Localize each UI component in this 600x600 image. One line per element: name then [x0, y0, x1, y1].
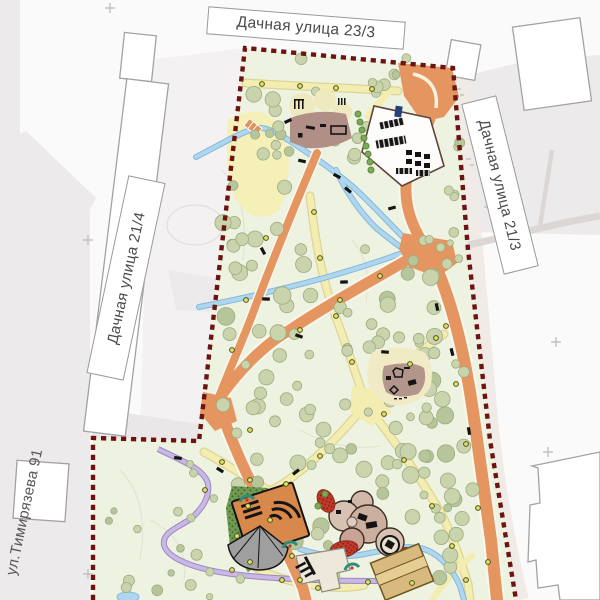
tree: [187, 514, 195, 522]
tree: [340, 399, 351, 410]
bush: [367, 159, 373, 165]
tree: [452, 360, 461, 369]
tree: [315, 438, 325, 448]
tree: [466, 483, 480, 497]
tree: [295, 244, 307, 256]
tree: [111, 508, 117, 514]
tree: [440, 473, 455, 488]
tree: [376, 475, 389, 488]
tree: [270, 222, 283, 235]
tree: [185, 580, 196, 591]
tree: [252, 324, 266, 338]
tree: [435, 391, 451, 407]
lamp-marker: [410, 581, 415, 586]
lamp-marker: [338, 298, 343, 303]
bush: [365, 151, 371, 157]
tree: [366, 319, 377, 330]
tree: [420, 491, 428, 499]
bush: [359, 127, 365, 133]
tree: [236, 233, 249, 246]
tree: [455, 511, 469, 525]
lamp-marker: [370, 87, 375, 92]
lamp-marker: [235, 534, 240, 539]
tree: [316, 422, 331, 437]
bench: [262, 297, 270, 300]
tree: [246, 86, 262, 102]
lamp-marker: [298, 84, 303, 89]
lamp-marker: [318, 256, 323, 261]
lamp-marker: [408, 362, 413, 367]
tree: [333, 448, 348, 463]
tree: [419, 450, 431, 462]
tree: [368, 78, 377, 87]
tree: [177, 544, 185, 552]
tree: [270, 416, 281, 427]
tree: [444, 504, 452, 512]
lamp-marker: [444, 324, 449, 329]
lamp-marker: [350, 360, 355, 365]
lamp-marker: [454, 382, 459, 387]
tree: [189, 469, 197, 477]
lamp-marker: [203, 488, 208, 493]
tree: [152, 585, 163, 596]
tree: [229, 262, 242, 275]
lamp-marker: [464, 578, 469, 583]
tree: [361, 245, 370, 254]
tree: [241, 360, 250, 369]
tree: [246, 260, 257, 271]
tree: [343, 308, 352, 317]
lamp-marker: [378, 274, 383, 279]
lamp-marker: [318, 454, 323, 459]
tree: [356, 461, 372, 477]
tree: [457, 439, 471, 453]
lamp-marker: [246, 504, 251, 509]
tree: [210, 495, 218, 503]
tree: [377, 488, 389, 500]
tree: [284, 147, 294, 157]
tree: [392, 71, 400, 79]
tree: [413, 333, 424, 344]
tree: [422, 403, 431, 412]
tree: [251, 476, 263, 488]
lamp-marker: [486, 560, 491, 565]
lamp-marker: [382, 412, 387, 417]
tree: [293, 381, 302, 390]
tree: [401, 267, 414, 280]
lamp-marker: [248, 560, 253, 565]
tree: [363, 341, 375, 353]
lamp-marker: [284, 482, 289, 487]
lamp-marker: [402, 458, 407, 463]
lamp-marker: [298, 328, 303, 333]
lamp-marker: [268, 518, 273, 523]
tree: [346, 444, 357, 455]
bush: [322, 491, 328, 497]
tree: [436, 243, 445, 252]
lamp-marker: [230, 568, 235, 573]
tree: [380, 297, 395, 312]
lamp-marker: [316, 586, 321, 591]
bush: [315, 503, 321, 509]
bush: [363, 143, 369, 149]
tree: [405, 509, 420, 524]
tree: [217, 308, 235, 326]
tree: [447, 240, 454, 247]
tree: [206, 568, 214, 576]
tree: [364, 408, 372, 416]
lamp-marker: [230, 348, 235, 353]
lamp-marker: [476, 506, 481, 511]
tree: [296, 257, 312, 273]
tree: [389, 421, 402, 434]
tree: [307, 460, 316, 469]
tree: [305, 350, 314, 359]
tree: [442, 259, 452, 269]
tree: [434, 530, 449, 545]
lamp-marker: [260, 82, 265, 87]
lamp-marker: [430, 504, 435, 509]
tree: [232, 428, 242, 438]
tree: [254, 387, 266, 399]
tree: [216, 398, 230, 412]
bush: [368, 167, 374, 173]
lamp-marker: [434, 336, 439, 341]
tree: [191, 549, 202, 560]
tree: [423, 269, 439, 285]
tree: [437, 407, 454, 424]
tree: [105, 517, 112, 524]
tree: [342, 345, 353, 356]
tree: [280, 393, 293, 406]
tree: [265, 92, 280, 107]
lamp-marker: [464, 442, 469, 447]
lamp-marker: [334, 314, 339, 319]
tree: [134, 525, 142, 533]
bench: [381, 350, 389, 354]
map-canvas[interactable]: Дачная улица 23/3 Дачная улица 21/4 Дачн…: [0, 0, 600, 600]
tree: [406, 413, 414, 421]
tree: [273, 349, 287, 363]
tree: [449, 527, 463, 541]
tree: [121, 582, 131, 592]
tree: [271, 140, 281, 150]
tree: [303, 288, 318, 303]
tree: [425, 235, 433, 243]
tree: [311, 527, 324, 540]
tree: [437, 445, 454, 462]
tree: [273, 287, 291, 305]
tree: [392, 459, 402, 469]
tree: [168, 570, 175, 577]
lamp-marker: [248, 428, 253, 433]
lamp-marker: [366, 580, 371, 585]
lamp-marker: [280, 578, 285, 583]
tree: [400, 444, 416, 460]
tree: [419, 411, 433, 425]
tree: [270, 325, 286, 341]
lamp-marker: [290, 554, 295, 559]
tree: [393, 332, 404, 343]
bench: [340, 280, 348, 283]
tree: [273, 151, 282, 160]
tree: [432, 570, 446, 584]
bush: [357, 119, 363, 125]
tree: [459, 367, 470, 378]
lamp-marker: [298, 578, 303, 583]
tree: [247, 231, 263, 247]
lamp-marker: [220, 460, 225, 465]
tree: [223, 328, 236, 341]
tree: [444, 488, 460, 504]
tree: [449, 228, 459, 238]
tree: [251, 453, 264, 466]
tree: [278, 180, 292, 194]
tree: [236, 575, 245, 584]
tree: [348, 148, 360, 160]
tree: [443, 548, 458, 563]
tree: [257, 148, 269, 160]
tree: [408, 255, 418, 265]
tree: [419, 467, 430, 478]
tree: [265, 129, 273, 137]
tree: [259, 370, 274, 385]
tree: [455, 255, 463, 263]
tree: [429, 347, 440, 358]
tree: [444, 186, 453, 195]
tree: [402, 467, 419, 484]
pond: [117, 592, 139, 600]
lamp-marker: [244, 298, 249, 303]
lamp-marker: [450, 544, 455, 549]
tree: [273, 121, 284, 132]
tree: [206, 594, 212, 600]
tree: [305, 404, 316, 415]
tree: [174, 507, 183, 516]
tree: [251, 130, 260, 139]
lamp-marker: [264, 236, 269, 241]
lamp-marker: [312, 210, 317, 215]
site-plan: [0, 0, 600, 600]
bush: [361, 135, 367, 141]
lamp-marker: [334, 86, 339, 91]
bush: [355, 111, 361, 117]
tree: [434, 512, 445, 523]
tree: [187, 461, 194, 468]
tree: [246, 401, 260, 415]
lamp-marker: [248, 478, 253, 483]
